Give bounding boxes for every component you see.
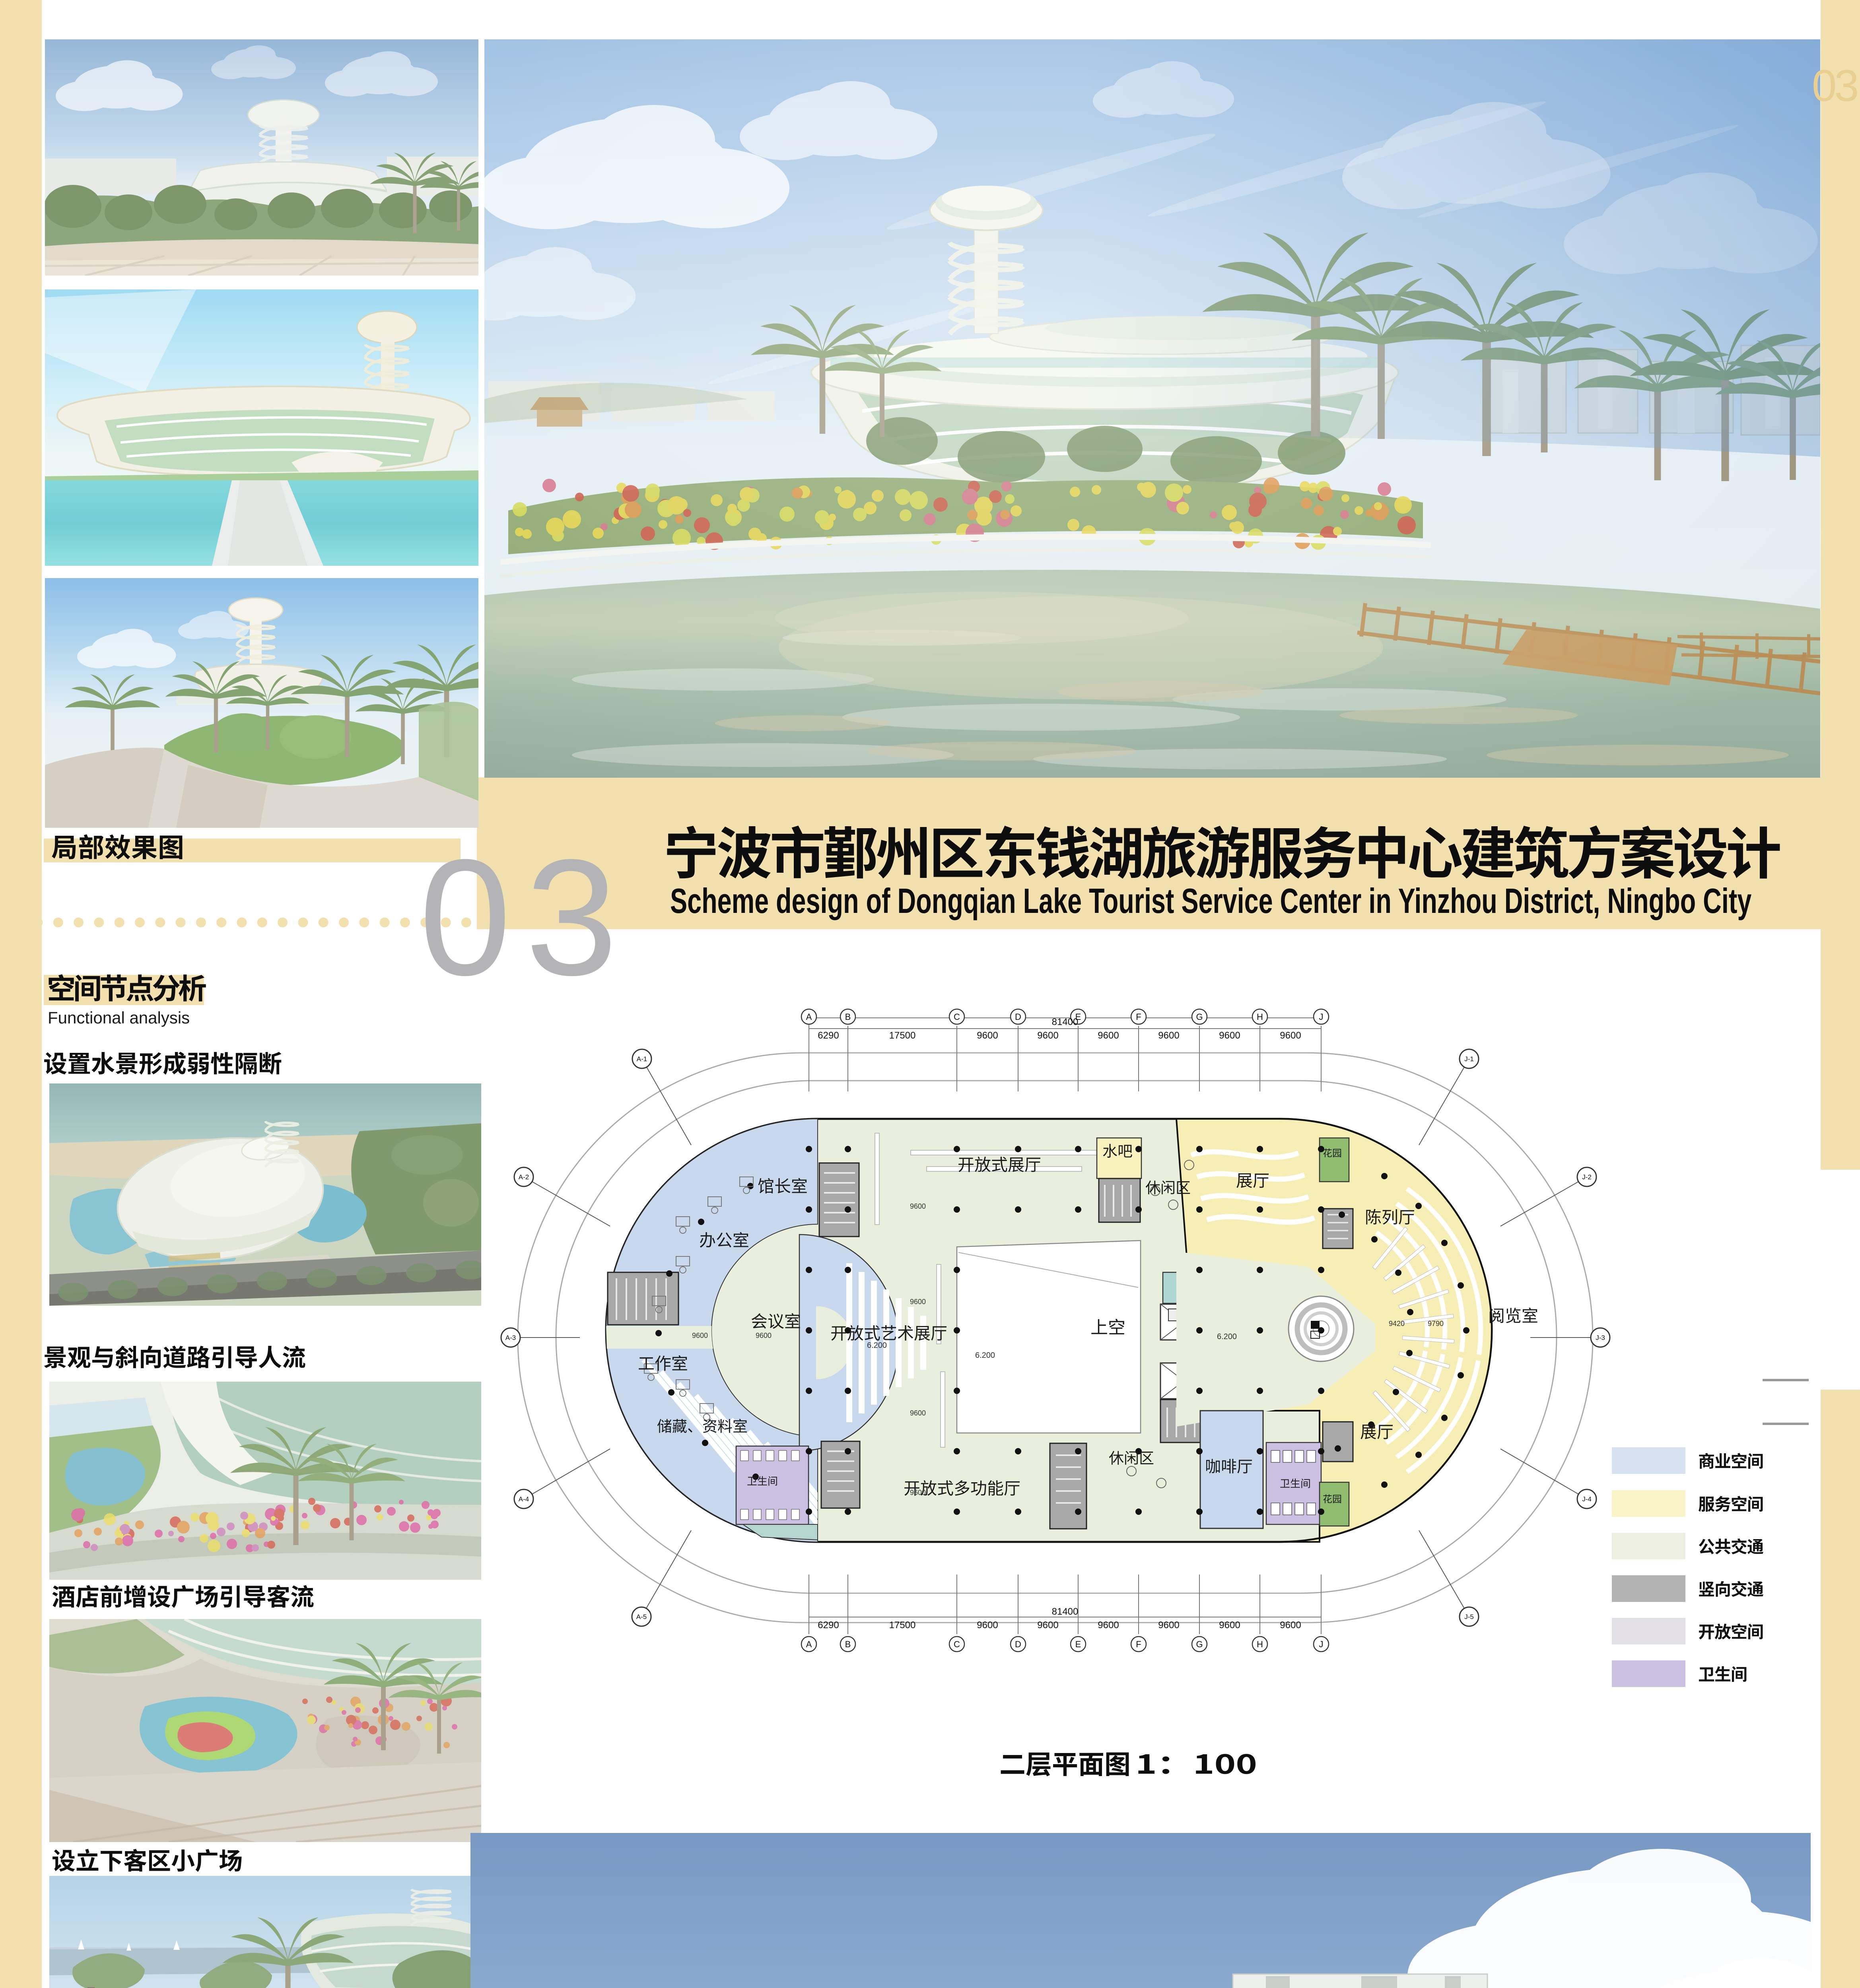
svg-text:E: E bbox=[1075, 1639, 1081, 1649]
svg-text:H: H bbox=[1257, 1012, 1263, 1022]
svg-text:J: J bbox=[1319, 1639, 1324, 1649]
svg-text:9600: 9600 bbox=[692, 1332, 708, 1340]
svg-text:9600: 9600 bbox=[1037, 1030, 1058, 1041]
svg-text:J-1: J-1 bbox=[1464, 1055, 1474, 1063]
svg-text:9600: 9600 bbox=[1098, 1620, 1119, 1631]
svg-text:J-3: J-3 bbox=[1596, 1334, 1605, 1342]
svg-text:A: A bbox=[806, 1639, 812, 1649]
svg-text:9600: 9600 bbox=[1280, 1620, 1301, 1631]
svg-text:A-3: A-3 bbox=[505, 1334, 516, 1342]
svg-text:9600: 9600 bbox=[1158, 1620, 1179, 1631]
svg-text:J: J bbox=[1319, 1012, 1324, 1022]
svg-text:A-5: A-5 bbox=[636, 1613, 647, 1621]
svg-text:B: B bbox=[845, 1012, 851, 1022]
svg-text:9600: 9600 bbox=[756, 1332, 772, 1340]
svg-text:A-2: A-2 bbox=[519, 1173, 529, 1181]
svg-text:A: A bbox=[806, 1012, 812, 1022]
svg-text:D: D bbox=[1015, 1639, 1021, 1649]
svg-text:J-4: J-4 bbox=[1582, 1495, 1592, 1503]
svg-text:9420: 9420 bbox=[1389, 1320, 1405, 1328]
svg-text:6.200: 6.200 bbox=[1217, 1332, 1237, 1341]
svg-text:9600: 9600 bbox=[1158, 1030, 1179, 1041]
svg-text:6.200: 6.200 bbox=[975, 1351, 995, 1360]
svg-text:9600: 9600 bbox=[910, 1298, 926, 1306]
svg-text:A-4: A-4 bbox=[519, 1495, 529, 1503]
svg-text:17500: 17500 bbox=[889, 1030, 916, 1041]
svg-text:D: D bbox=[1015, 1012, 1021, 1022]
svg-text:9600: 9600 bbox=[1098, 1030, 1119, 1041]
svg-text:9600: 9600 bbox=[1219, 1030, 1240, 1041]
svg-text:B: B bbox=[845, 1639, 851, 1649]
svg-text:9600: 9600 bbox=[910, 1202, 926, 1210]
svg-text:6290: 6290 bbox=[818, 1620, 839, 1631]
svg-text:6290: 6290 bbox=[818, 1030, 839, 1041]
svg-text:G: G bbox=[1196, 1639, 1203, 1649]
svg-text:81400: 81400 bbox=[1052, 1017, 1079, 1027]
svg-text:9600: 9600 bbox=[910, 1409, 926, 1417]
svg-text:81400: 81400 bbox=[1052, 1606, 1079, 1617]
svg-text:A-1: A-1 bbox=[637, 1055, 647, 1063]
svg-text:F: F bbox=[1136, 1639, 1141, 1649]
svg-text:9600: 9600 bbox=[1037, 1620, 1058, 1631]
svg-text:C: C bbox=[954, 1012, 960, 1022]
svg-text:C: C bbox=[954, 1639, 960, 1649]
svg-text:9600: 9600 bbox=[910, 1489, 926, 1497]
svg-text:H: H bbox=[1257, 1639, 1263, 1649]
svg-text:9790: 9790 bbox=[1428, 1320, 1444, 1328]
svg-text:9600: 9600 bbox=[1280, 1030, 1301, 1041]
svg-text:9600: 9600 bbox=[977, 1030, 998, 1041]
svg-text:9600: 9600 bbox=[1219, 1620, 1240, 1631]
svg-text:J-5: J-5 bbox=[1464, 1613, 1474, 1621]
svg-text:6.200: 6.200 bbox=[867, 1341, 887, 1350]
svg-text:J-2: J-2 bbox=[1582, 1173, 1592, 1181]
svg-text:G: G bbox=[1196, 1012, 1203, 1022]
svg-text:F: F bbox=[1136, 1012, 1141, 1022]
svg-text:9600: 9600 bbox=[977, 1620, 998, 1631]
svg-text:17500: 17500 bbox=[889, 1620, 916, 1631]
